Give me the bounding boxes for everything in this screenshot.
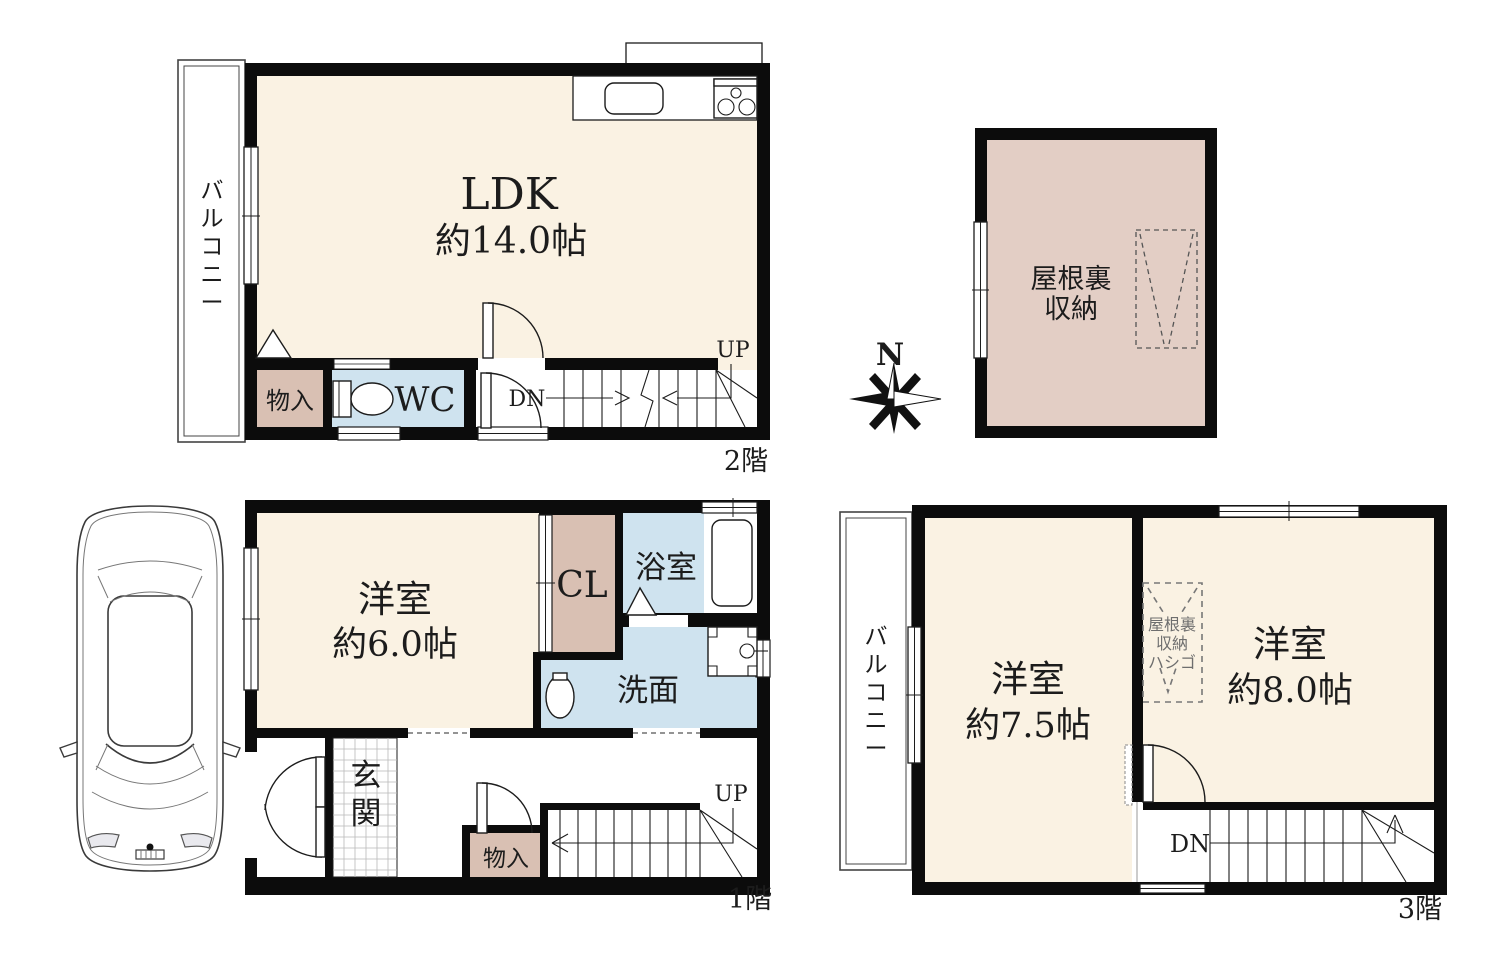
yoshitsu75-size-label: 約7.5帖 xyxy=(965,706,1091,746)
window-2f-bottom-1 xyxy=(338,427,400,440)
floorplan-canvas: バルコニー xyxy=(0,0,1500,961)
ldk-label: LDK xyxy=(460,169,558,220)
window-1f-left xyxy=(242,548,260,690)
stairs-up-label-1f: UP xyxy=(714,782,748,807)
door-3f-room75 xyxy=(1125,745,1132,805)
wall-stairs-left xyxy=(540,803,548,877)
floorplan-3f: バルコニー 屋根裏 収納 ハシゴ xyxy=(815,480,1485,940)
window-attic xyxy=(972,222,989,358)
floorplan-2f: バルコニー xyxy=(170,28,800,490)
yoshitsu80-label: 洋室 xyxy=(1253,623,1327,666)
opening-dashed-wash xyxy=(633,728,700,738)
opening-bath xyxy=(629,615,688,627)
wall-cl-bottom xyxy=(540,652,623,660)
floorplan-attic: 屋根裏 収納 N xyxy=(820,95,1260,465)
balcony-2f-label: バルコニー xyxy=(201,178,224,316)
bath-label: 浴室 xyxy=(635,550,697,586)
ladder-label-3: ハシゴ xyxy=(1148,653,1196,672)
cl-sliding-door xyxy=(536,515,555,652)
monoire-1f-label: 物入 xyxy=(483,846,529,872)
wall-yoshitsu-wash xyxy=(533,652,541,728)
attic-label-2: 収納 xyxy=(1044,294,1098,325)
window-2f-bottom-2 xyxy=(478,427,548,440)
ladder-label-1: 屋根裏 xyxy=(1148,615,1196,634)
attic-label-1: 屋根裏 xyxy=(1031,264,1112,295)
yoshitsu80-size-label: 約8.0帖 xyxy=(1227,671,1353,711)
cl-label: CL xyxy=(556,565,608,606)
floor-label-3f: 3階 xyxy=(1398,894,1442,925)
yoshitsu75-label: 洋室 xyxy=(991,658,1065,701)
stove-icon xyxy=(714,79,757,118)
wall-3f-middle xyxy=(1132,505,1143,802)
balcony-3f-label: バルコニー xyxy=(865,624,888,762)
wall-cl-bath xyxy=(615,505,623,652)
ldk-size-label: 約14.0帖 xyxy=(435,221,587,262)
stairs-up-label: UP xyxy=(716,338,750,363)
wc-label: WC xyxy=(395,380,456,420)
wash-label: 洗面 xyxy=(617,673,679,709)
kitchen-counter-outer xyxy=(626,43,762,66)
opening-dashed-yoshitsu xyxy=(408,728,470,738)
wall-bath-wash-2 xyxy=(688,613,708,627)
wall-entrance-tile xyxy=(325,738,333,877)
wall-stairs-top xyxy=(548,803,700,810)
balcony-2f: バルコニー xyxy=(178,60,245,442)
yoshitsu6-size-label: 約6.0帖 xyxy=(332,625,458,665)
door-opening-ldk xyxy=(478,358,545,370)
compass-icon: N xyxy=(849,337,941,434)
kitchen-sink-icon xyxy=(605,83,663,114)
yoshitsu6-label: 洋室 xyxy=(358,578,432,621)
stairs-dn-label: DN xyxy=(509,387,546,412)
stairs-dn-label-3f: DN xyxy=(1170,830,1210,858)
ladder-label-2: 収納 xyxy=(1156,634,1188,653)
floorplan-1f: UP 洋室 約6.0帖 CL 浴室 洗面 玄関 物入 1階 xyxy=(40,480,800,940)
window-2f-balcony xyxy=(242,147,260,284)
window-3f-balcony xyxy=(906,627,923,763)
wall-monoire-left xyxy=(462,833,470,877)
bathtub-icon xyxy=(712,520,752,606)
storage-2f-label: 物入 xyxy=(266,387,314,415)
floor-label-1f: 1階 xyxy=(728,884,772,915)
wall-monoire-top xyxy=(462,825,540,833)
floor-label-2f: 2階 xyxy=(724,446,768,477)
wc-door xyxy=(334,359,390,369)
toilet-icon xyxy=(333,381,393,417)
wall-stairs-top-3f xyxy=(1205,802,1434,810)
window-3f-bottom xyxy=(1140,884,1205,893)
balcony-3f: バルコニー xyxy=(840,512,912,870)
window-1f-right xyxy=(756,640,770,677)
kitchen-counter xyxy=(573,76,757,120)
compass-north-label: N xyxy=(876,337,904,373)
car-topview-icon xyxy=(60,506,240,871)
